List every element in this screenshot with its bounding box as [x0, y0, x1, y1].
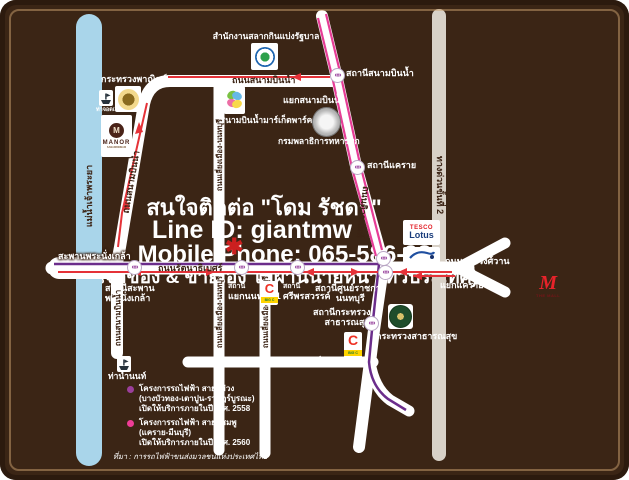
sanambinnam-lower-road-label: ถนนสนามบินน้ำ	[112, 290, 125, 346]
the-mall-logo: M THE MALL	[536, 273, 560, 298]
liang-mueang-upper-road-label: ถนนเลี่ยงเมือง-นนทบุรี	[214, 119, 226, 191]
road-label-text: ถนนเลี่ยงเมือง-นนทบุรี	[215, 276, 224, 348]
station-line: สาธารณสุข	[313, 317, 370, 327]
manor-logo: M MANOR SANAMBINNAM	[101, 115, 132, 157]
chao-phraya-river	[76, 14, 102, 466]
moph-label: กระทรวงสาธารณสุข	[376, 331, 457, 341]
the-mall-label: THE MALL	[536, 293, 560, 298]
sanambinnam-top-road-label: ถนนสนามบินน้ำ	[232, 75, 295, 85]
mrt-station-icon: «»	[234, 260, 249, 275]
pier-bottom-label: ท่าน้ำนนท์	[108, 372, 146, 382]
mrt-station-icon: «»	[290, 260, 305, 275]
lottery-office-seal	[251, 43, 278, 70]
lotus-label: Lotus	[409, 231, 434, 240]
legend-purple-l2: (บางบัวทอง-เตาปูน-ราษฎร์บูรณะ)	[139, 394, 254, 404]
station-civic-center-label: สถานีศูนย์ราชการ นนทบุรี	[315, 283, 386, 304]
quartermaster-seal	[312, 107, 341, 137]
station-khaerai-label: สถานีแคราย	[367, 160, 416, 170]
big-c-logo: C BIG C	[261, 281, 278, 305]
big-c-strip: BIG C	[344, 350, 362, 356]
big-c-logo: C BIG C	[344, 332, 362, 358]
pink-line-bullet	[127, 420, 134, 427]
commerce-ministry-seal	[115, 86, 141, 112]
location-flower-marker: ✱	[225, 234, 243, 260]
legend-pink-l2: (แคราย-มีนบุรี)	[139, 428, 250, 438]
mrt-station-icon: «»	[330, 68, 345, 83]
boat-pier-icon	[117, 356, 131, 372]
pracharat-label: ถนนประชาราษฎร์	[250, 356, 321, 366]
river-label: แม่น้ำเจ้าพระยา	[82, 165, 96, 227]
market-park-label: สนามบินน้ำมาร์เก็ตพาร์ค	[220, 116, 312, 126]
junction-sanambinnam-label: แยกสนามบินน้ำ	[283, 95, 345, 105]
lottery-office-label: สำนักงานสลากกินแบ่งรัฐบาล	[213, 32, 320, 42]
legend-purple-l1: โครงการรถไฟฟ้า สายสีม่วง	[139, 384, 254, 394]
station-moph-label: สถานีกระทรวง สาธารณสุข	[313, 307, 370, 328]
quartermaster-label: กรมพลาธิการทหารบก	[278, 137, 360, 147]
legend-pink-l3: เปิดให้บริการภายในปี พ.ศ. 2560	[139, 438, 250, 448]
big-c-letter: C	[265, 281, 274, 297]
ngamwongwan-label: ถนนงามวงศ์วาน	[445, 256, 510, 266]
central-plaza-logo	[403, 247, 440, 263]
liang-mueang-lower-road-label: ถนนเลี่ยงเมือง-นนทบุรี	[214, 276, 226, 348]
mrt-station-icon: «»	[127, 260, 142, 275]
purple-line-bullet	[127, 386, 134, 393]
big-c-letter: C	[348, 332, 358, 350]
mrt-station-icon: «»	[350, 160, 365, 175]
public-health-seal	[388, 304, 413, 329]
market-park-logo	[224, 86, 245, 114]
rattanathibet-road-label: ถนนรัตนาธิเบศร์	[158, 263, 222, 273]
expressway-label: ทางด่วนขั้นที่ 2	[433, 156, 447, 214]
the-mall-m: M	[536, 273, 560, 293]
big-c-strip: BIG C	[261, 297, 278, 303]
road-label-text: ทางด่วนขั้นที่ 2	[435, 156, 445, 214]
legend-pink-line: โครงการรถไฟฟ้า สายสีชมพู (แคราย-มีนบุรี)…	[127, 418, 254, 448]
legend-source: ที่มา : การรถไฟฟ้าขนส่งมวลชนแห่งประเทศไท…	[113, 453, 267, 462]
river-label-text: แม่น้ำเจ้าพระยา	[84, 165, 94, 227]
legend-pink-l1: โครงการรถไฟฟ้า สายสีชมพู	[139, 418, 250, 428]
bridge-label: สะพานพระนั่งเกล้า	[58, 251, 131, 261]
boat-pier-icon	[99, 90, 113, 106]
station-line: สถานีกระทรวง	[313, 307, 370, 317]
tesco-lotus-logo: TESCO Lotus	[403, 220, 440, 245]
mrt-station-icon: «»	[376, 251, 391, 266]
station-line: นนทบุรี	[315, 293, 386, 303]
road-label-text: ถนนสนามบินน้ำ	[114, 290, 123, 346]
mrt-station-icon: «»	[364, 316, 379, 331]
manor-sublabel: SANAMBINNAM	[107, 146, 126, 149]
mrt-station-icon: «»	[378, 265, 393, 280]
station-sanambinnam-label: สถานีสนามบินน้ำ	[346, 68, 414, 78]
legend-purple-line: โครงการรถไฟฟ้า สายสีม่วง (บางบัวทอง-เตาป…	[127, 384, 254, 414]
legend: โครงการรถไฟฟ้า สายสีม่วง (บางบัวทอง-เตาป…	[127, 384, 254, 452]
commerce-ministry-label: กระทรวงพาณิชย์	[101, 74, 167, 84]
junction-khaerai-label: แยกแคราย	[440, 280, 484, 290]
station-line: สถานีศูนย์ราชการ	[315, 283, 386, 293]
road-label-text: ถนนเลี่ยงเมือง-นนทบุรี	[215, 119, 224, 191]
map-screenshot: สนใจติดต่อ "โดม รัชดา" Line ID: giantmw …	[0, 0, 629, 480]
legend-purple-l3: เปิดให้บริการภายในปี พ.ศ. 2558	[139, 404, 254, 414]
map-canvas	[0, 0, 629, 480]
